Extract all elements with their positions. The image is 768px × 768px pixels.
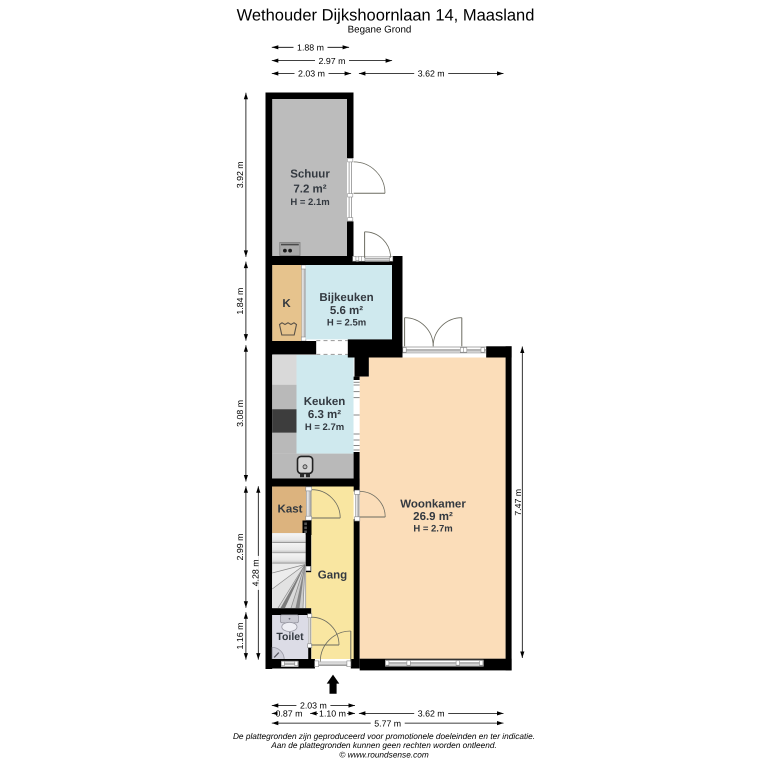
svg-text:Woonkamer: Woonkamer bbox=[400, 498, 466, 510]
svg-text:5.6 m²: 5.6 m² bbox=[330, 305, 363, 317]
svg-text:Schuur: Schuur bbox=[290, 169, 330, 181]
svg-text:1.10 m: 1.10 m bbox=[319, 709, 346, 719]
svg-text:3.92 m: 3.92 m bbox=[235, 161, 245, 188]
svg-text:H = 2.7m: H = 2.7m bbox=[305, 422, 344, 433]
svg-text:Keuken: Keuken bbox=[304, 396, 346, 408]
svg-text:1.84 m: 1.84 m bbox=[235, 288, 245, 315]
svg-text:0.87 m: 0.87 m bbox=[276, 709, 303, 719]
svg-text:1.88 m: 1.88 m bbox=[297, 43, 324, 53]
svg-text:H = 2.1m: H = 2.1m bbox=[290, 197, 329, 208]
svg-text:Bijkeuken: Bijkeuken bbox=[319, 292, 373, 304]
svg-text:3.62 m: 3.62 m bbox=[418, 709, 445, 719]
svg-text:3.08 m: 3.08 m bbox=[235, 400, 245, 427]
svg-text:Begane Grond: Begane Grond bbox=[348, 25, 412, 36]
svg-text:3.62 m: 3.62 m bbox=[418, 69, 445, 79]
svg-text:2.97 m: 2.97 m bbox=[319, 56, 346, 66]
svg-text:K: K bbox=[282, 298, 291, 310]
svg-text:H = 2.5m: H = 2.5m bbox=[327, 318, 366, 329]
svg-text:7.47 m: 7.47 m bbox=[513, 489, 523, 516]
svg-text:Kast: Kast bbox=[278, 504, 303, 516]
svg-text:Gang: Gang bbox=[318, 569, 347, 581]
svg-text:6.3 m²: 6.3 m² bbox=[308, 409, 341, 421]
svg-text:7.2 m²: 7.2 m² bbox=[293, 184, 326, 196]
svg-text:5.77 m: 5.77 m bbox=[374, 718, 401, 728]
svg-text:© www.roundsense.com: © www.roundsense.com bbox=[339, 750, 429, 760]
svg-text:26.9 m²: 26.9 m² bbox=[413, 511, 453, 523]
svg-text:2.03 m: 2.03 m bbox=[298, 69, 325, 79]
svg-text:1.16 m: 1.16 m bbox=[235, 623, 245, 650]
svg-text:Wethouder Dijkshoornlaan 14, M: Wethouder Dijkshoornlaan 14, Maasland bbox=[237, 6, 535, 24]
svg-text:4.28 m: 4.28 m bbox=[250, 559, 260, 586]
svg-text:Toilet: Toilet bbox=[276, 631, 304, 643]
svg-text:2.99 m: 2.99 m bbox=[235, 534, 245, 561]
svg-text:H = 2.7m: H = 2.7m bbox=[413, 523, 452, 534]
